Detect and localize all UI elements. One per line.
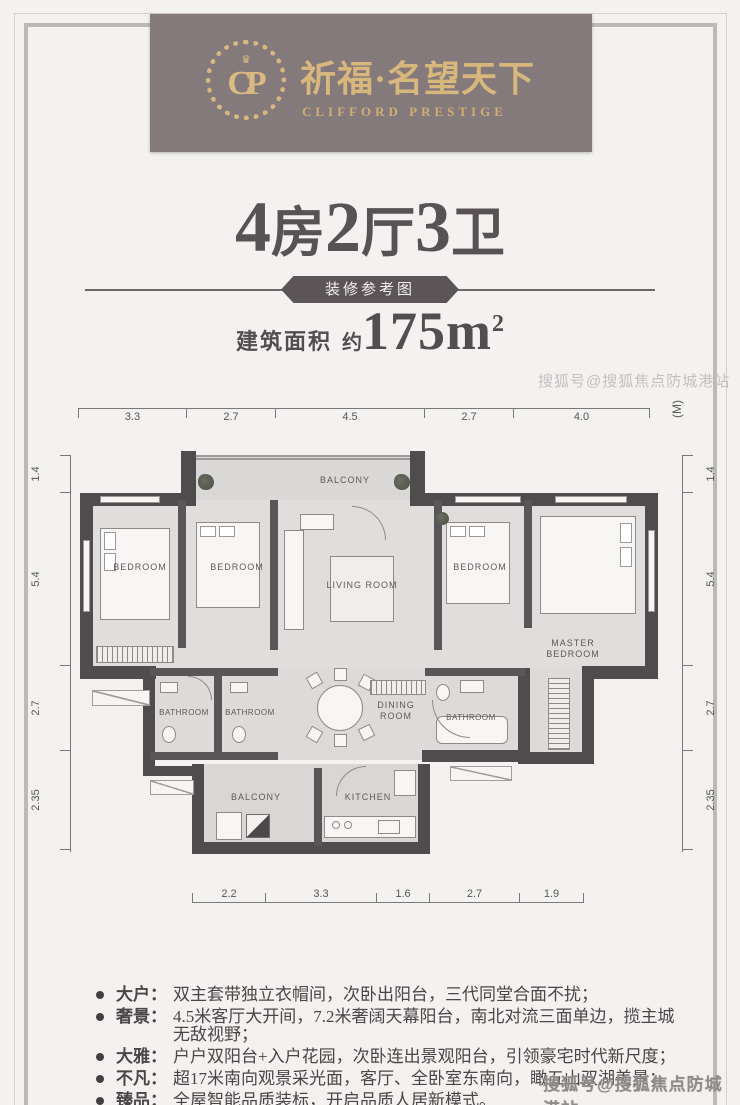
bed-icon bbox=[100, 528, 170, 620]
bullet-icon bbox=[96, 1053, 104, 1061]
feature-text: 双主套带独立衣帽间，次卧出阳台，三代同堂合面不扰； bbox=[173, 986, 598, 1004]
sofa-icon bbox=[284, 530, 304, 630]
floorplan: 3.3 2.7 4.5 2.7 4.0 (M) 2.2 3.3 1.6 2.7 … bbox=[0, 0, 740, 1105]
window-icon bbox=[83, 540, 90, 612]
room-label-living: LIVING ROOM bbox=[305, 580, 419, 591]
bullet-icon bbox=[96, 1075, 104, 1083]
feature-label: 奢景： bbox=[116, 1008, 167, 1026]
room-label-balcony-bottom: BALCONY bbox=[206, 792, 306, 803]
dining-table-icon bbox=[317, 685, 363, 731]
room-label-bedroom-left: BEDROOM bbox=[95, 562, 185, 573]
dim-segment: 4.0 bbox=[514, 409, 650, 418]
list-item: 大雅： 户户双阳台+入户花园，次卧连出景观阳台，引领豪宅时代新尺度； bbox=[96, 1048, 676, 1066]
bed-icon bbox=[540, 516, 636, 614]
stove-burner-icon bbox=[344, 821, 352, 829]
wall bbox=[150, 752, 278, 760]
brand-name-cn: 祈福·名望天下 bbox=[300, 50, 580, 102]
dim-segment: 2.7 bbox=[187, 409, 276, 418]
wall bbox=[192, 842, 430, 854]
window-icon bbox=[648, 530, 655, 612]
brand-name-en: CLIFFORD PRESTIGE bbox=[302, 104, 507, 120]
toilet-icon bbox=[436, 684, 450, 701]
feature-text: 户户双阳台+入户花园，次卧连出景观阳台，引领豪宅时代新尺度； bbox=[173, 1048, 676, 1066]
room-label-bedroom-right: BEDROOM bbox=[435, 562, 525, 573]
room-label-bathroom-1: BATHROOM bbox=[150, 707, 218, 718]
utility-box-icon bbox=[246, 814, 270, 838]
room-label-bathroom-2: BATHROOM bbox=[218, 707, 282, 718]
brand-logo-ring-icon: ♛ CP bbox=[206, 40, 286, 120]
dim-strip-left: 1.4 5.4 2.7 2.35 bbox=[60, 455, 71, 852]
armchair-icon bbox=[300, 514, 334, 530]
dim-segment: 2.2 bbox=[192, 893, 266, 902]
dim-segment: 2.35 bbox=[683, 751, 693, 850]
feature-text: 全屋智能品质装标，开启品质人居新模式。 bbox=[173, 1092, 496, 1105]
ac-ledge-icon bbox=[450, 766, 512, 781]
dim-segment: 2.7 bbox=[683, 666, 693, 751]
window-icon bbox=[455, 496, 521, 503]
feature-label: 大户： bbox=[116, 986, 167, 1004]
dim-segment: 1.4 bbox=[60, 455, 70, 493]
wall bbox=[425, 668, 525, 676]
dim-segment: 2.7 bbox=[425, 409, 514, 418]
watermark-bottom: 搜狐号@搜狐焦点防城港站 bbox=[543, 1070, 740, 1105]
room-label-kitchen: KITCHEN bbox=[320, 792, 416, 803]
dim-segment: 4.5 bbox=[276, 409, 425, 418]
plant-icon bbox=[436, 512, 449, 525]
dim-strip-right: 1.4 5.4 2.7 2.35 bbox=[682, 455, 693, 852]
wardrobe-icon bbox=[370, 680, 426, 695]
stove-burner-icon bbox=[332, 821, 340, 829]
wall bbox=[518, 668, 530, 760]
wardrobe-icon bbox=[548, 678, 570, 750]
wall bbox=[410, 451, 425, 506]
sink-icon bbox=[160, 682, 178, 693]
toilet-icon bbox=[162, 726, 176, 743]
window-icon bbox=[100, 496, 160, 503]
room-label-bathroom-3: BATHROOM bbox=[436, 712, 506, 723]
brand-monogram: CP bbox=[211, 65, 277, 103]
dim-strip-top: 3.3 2.7 4.5 2.7 4.0 bbox=[78, 408, 650, 431]
dim-segment: 2.7 bbox=[430, 893, 520, 902]
wall bbox=[181, 451, 196, 506]
wall bbox=[270, 500, 278, 650]
dim-strip-bottom: 2.2 3.3 1.6 2.7 1.9 bbox=[192, 880, 584, 903]
bullet-icon bbox=[96, 991, 104, 999]
wall bbox=[178, 500, 186, 648]
washer-icon bbox=[216, 812, 242, 840]
sink-icon bbox=[230, 682, 248, 693]
wall bbox=[418, 764, 430, 854]
list-item: 奢景： 4.5米客厅大开间，7.2米奢阔天幕阳台，南北对流三面单边，揽主城无敌视… bbox=[96, 1008, 676, 1044]
dim-segment: 3.3 bbox=[78, 409, 187, 418]
dim-segment: 2.7 bbox=[60, 666, 70, 751]
bullet-icon bbox=[96, 1013, 104, 1021]
wardrobe-icon bbox=[96, 646, 174, 663]
brand-banner: ♛ CP 祈福·名望天下 CLIFFORD PRESTIGE bbox=[150, 14, 592, 152]
feature-text: 4.5米客厅大开间，7.2米奢阔天幕阳台，南北对流三面单边，揽主城无敌视野； bbox=[173, 1008, 676, 1044]
toilet-icon bbox=[232, 726, 246, 743]
dim-segment: 1.4 bbox=[683, 455, 693, 493]
feature-label: 臻品： bbox=[116, 1092, 167, 1105]
wall bbox=[150, 668, 278, 676]
dim-segment: 5.4 bbox=[683, 493, 693, 666]
sink-icon bbox=[460, 680, 484, 693]
window-icon bbox=[555, 496, 627, 503]
dim-segment: 5.4 bbox=[60, 493, 70, 666]
bullet-icon bbox=[96, 1097, 104, 1105]
wall bbox=[314, 768, 322, 846]
dim-unit-label: (M) bbox=[670, 400, 684, 418]
chair-icon bbox=[334, 734, 347, 747]
room-label-dining: DINING ROOM bbox=[368, 700, 424, 722]
room-label-bedroom-mid: BEDROOM bbox=[192, 562, 282, 573]
feature-label: 大雅： bbox=[116, 1048, 167, 1066]
plant-icon bbox=[198, 474, 214, 490]
room-label-balcony-top: BALCONY bbox=[280, 475, 410, 486]
ac-ledge-icon bbox=[150, 780, 194, 795]
wall bbox=[192, 764, 204, 854]
list-item: 大户： 双主套带独立衣帽间，次卧出阳台，三代同堂合面不扰； bbox=[96, 986, 676, 1004]
wall bbox=[524, 500, 532, 628]
wall bbox=[422, 750, 530, 762]
wall bbox=[582, 666, 594, 764]
dim-segment: 3.3 bbox=[266, 893, 377, 902]
ac-ledge-icon bbox=[92, 690, 150, 706]
kitchen-sink-icon bbox=[378, 820, 400, 834]
dim-segment: 2.35 bbox=[60, 751, 70, 850]
dim-segment: 1.9 bbox=[520, 893, 584, 902]
wall bbox=[594, 666, 658, 679]
feature-label: 不凡： bbox=[116, 1070, 167, 1088]
dim-segment: 1.6 bbox=[377, 893, 430, 902]
poster-page: ♛ CP 祈福·名望天下 CLIFFORD PRESTIGE 4房2厅3卫 装修… bbox=[0, 0, 740, 1105]
room-label-master: MASTER BEDROOM bbox=[533, 638, 613, 660]
chair-icon bbox=[334, 668, 347, 681]
